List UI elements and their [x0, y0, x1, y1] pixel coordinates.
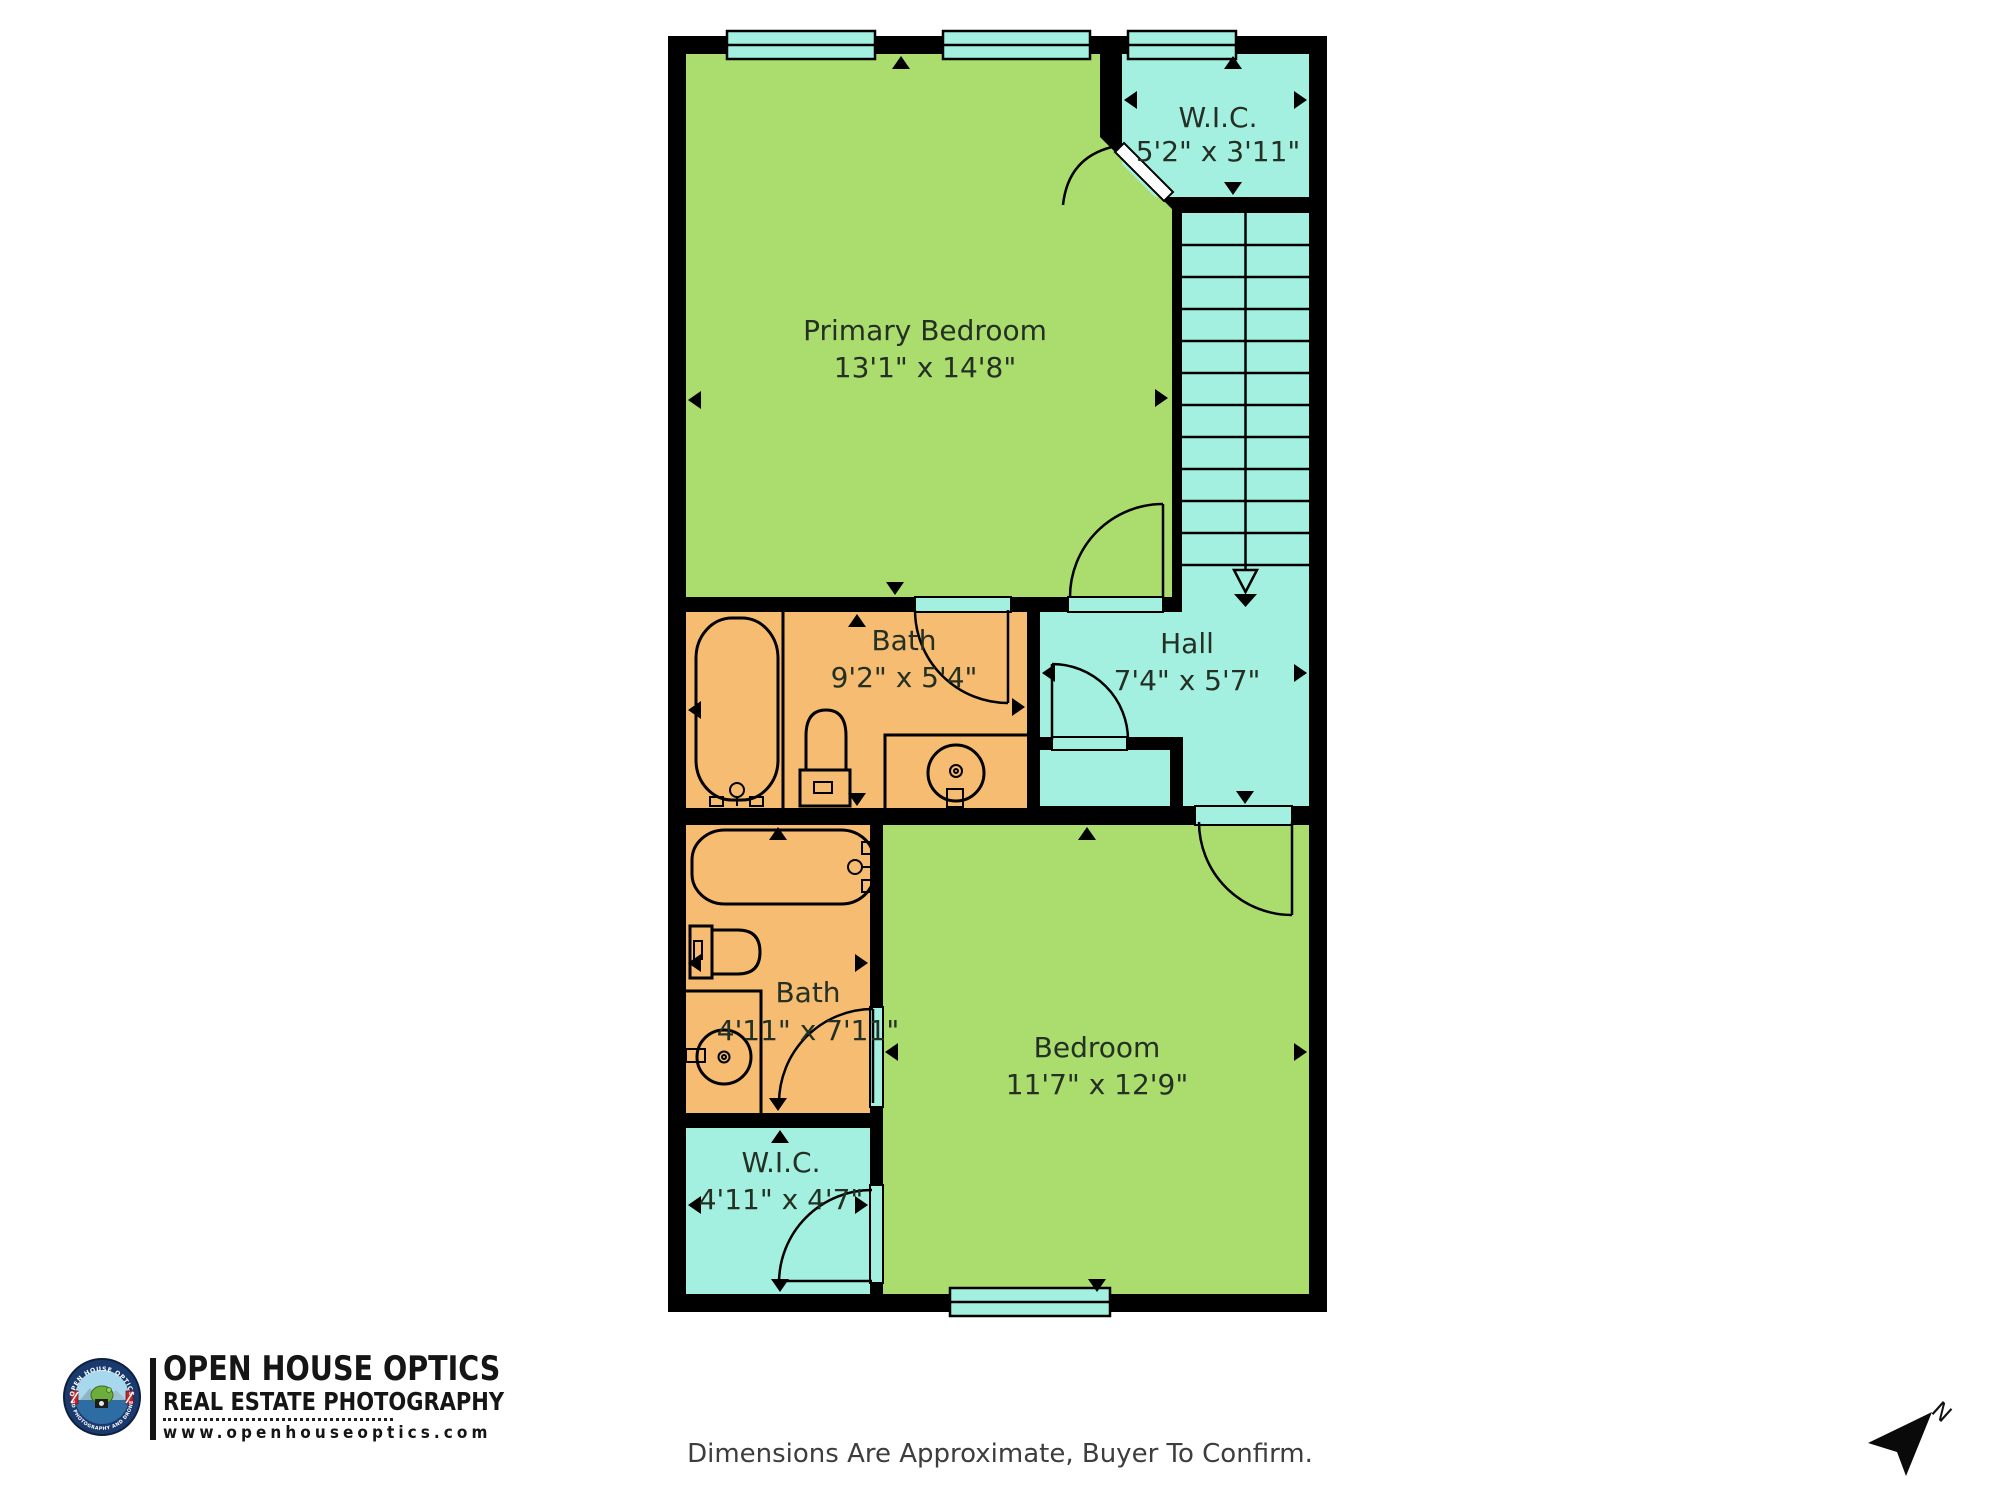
compass-north-label: N	[1926, 1397, 1956, 1428]
floor-plan: Primary Bedroom 13'1" x 14'8" W.I.C. 5'2…	[0, 0, 2000, 1500]
dimensions-disclaimer: Dimensions Are Approximate, Buyer To Con…	[0, 1439, 2000, 1469]
room-name: Hall	[1160, 627, 1214, 660]
room-dims: 5'2" x 3'11"	[1136, 135, 1301, 168]
room-dims: 4'11" x 4'7"	[699, 1183, 864, 1216]
logo-dotted-rule	[163, 1418, 393, 1421]
room-name: Primary Bedroom	[803, 314, 1047, 347]
room-dims: 11'7" x 12'9"	[1006, 1068, 1188, 1101]
room-dims: 7'4" x 5'7"	[1114, 664, 1261, 697]
room-name: Bath	[871, 624, 936, 657]
logo-divider	[150, 1358, 156, 1440]
room-bath-lower	[686, 825, 870, 1113]
room-name: Bath	[775, 976, 840, 1009]
room-name: W.I.C.	[1179, 101, 1258, 134]
room-name: Bedroom	[1034, 1031, 1161, 1064]
room-dims: 4'11" x 7'11"	[717, 1014, 899, 1047]
room-dims: 9'2" x 5'4"	[831, 661, 978, 694]
company-logo: OPEN HOUSE OPTICS 3D PHOTOGRAPHY AND DRO…	[60, 1352, 480, 1447]
room-dims: 13'1" x 14'8"	[834, 351, 1016, 384]
logo-badge-icon: OPEN HOUSE OPTICS 3D PHOTOGRAPHY AND DRO…	[62, 1354, 142, 1440]
company-name: OPEN HOUSE OPTICS	[163, 1352, 500, 1386]
company-tagline: REAL ESTATE PHOTOGRAPHY	[163, 1389, 504, 1414]
room-bath-upper	[686, 612, 1027, 808]
room-name: W.I.C.	[742, 1146, 821, 1179]
